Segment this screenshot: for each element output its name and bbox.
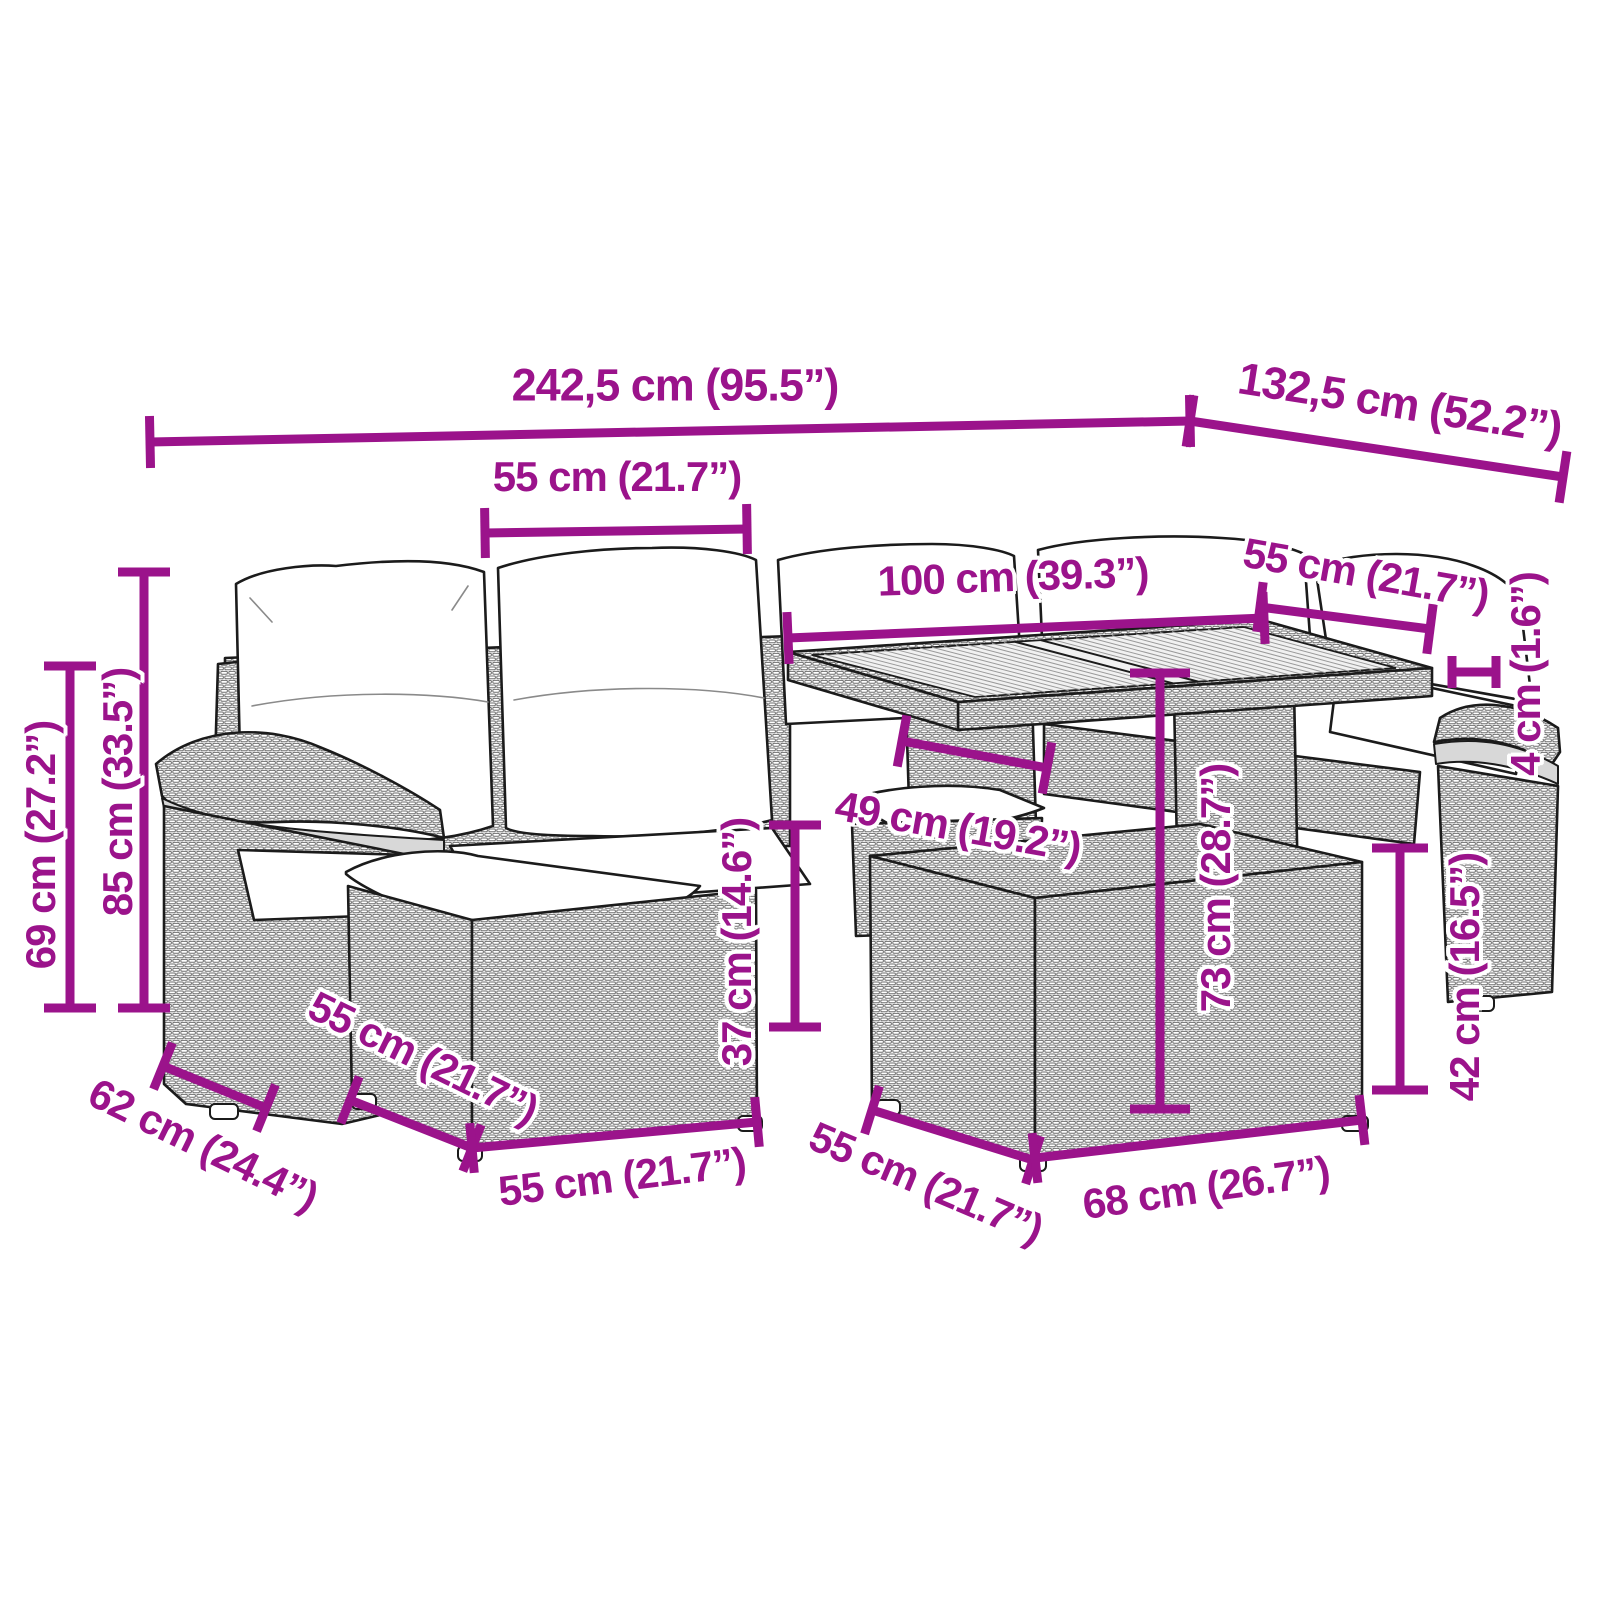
dimension-label-tabletop-thickness: 4 cm (1.6”) bbox=[1505, 572, 1547, 776]
dimension-line bbox=[1559, 451, 1567, 502]
dimension-line bbox=[787, 612, 789, 664]
sofa-foot bbox=[210, 1104, 238, 1119]
dimension-line bbox=[1427, 604, 1433, 654]
dimension-label-stool-height: 42 cm (16.5”) bbox=[1444, 853, 1486, 1101]
dimension-line bbox=[470, 1123, 475, 1173]
dimension-label-armrest-height: 69 cm (27.2”) bbox=[20, 721, 62, 969]
dimension-line bbox=[755, 1097, 760, 1147]
dimension-line bbox=[485, 508, 486, 558]
dimension-label-backrest-height: 85 cm (33.5”) bbox=[97, 668, 139, 916]
dimension-line bbox=[1032, 1133, 1038, 1183]
back-cushion-2 bbox=[498, 548, 772, 837]
front-stool bbox=[870, 824, 1368, 1171]
dimension-line bbox=[747, 504, 748, 554]
dimension-line bbox=[150, 421, 1190, 442]
dimension-label-overall-width: 242,5 cm (95.5”) bbox=[512, 363, 839, 408]
dimension-line bbox=[485, 529, 747, 533]
dimension-line bbox=[1359, 1095, 1365, 1145]
dimension-diagram: 242,5 cm (95.5”) 132,5 cm (52.2”) 55 cm … bbox=[0, 0, 1600, 1600]
dimension-line bbox=[149, 416, 150, 468]
dimension-label-seat-height: 37 cm (14.6”) bbox=[716, 818, 758, 1066]
dimension-label-back-cushion-width: 55 cm (21.7”) bbox=[493, 456, 741, 498]
dimension-label-table-height: 73 cm (28.7”) bbox=[1195, 764, 1237, 1012]
dimension-line bbox=[897, 715, 907, 766]
dimension-line bbox=[1257, 582, 1263, 632]
dimension-label-table-length: 100 cm (39.3”) bbox=[877, 551, 1149, 602]
furniture-line-art bbox=[0, 0, 1600, 1600]
